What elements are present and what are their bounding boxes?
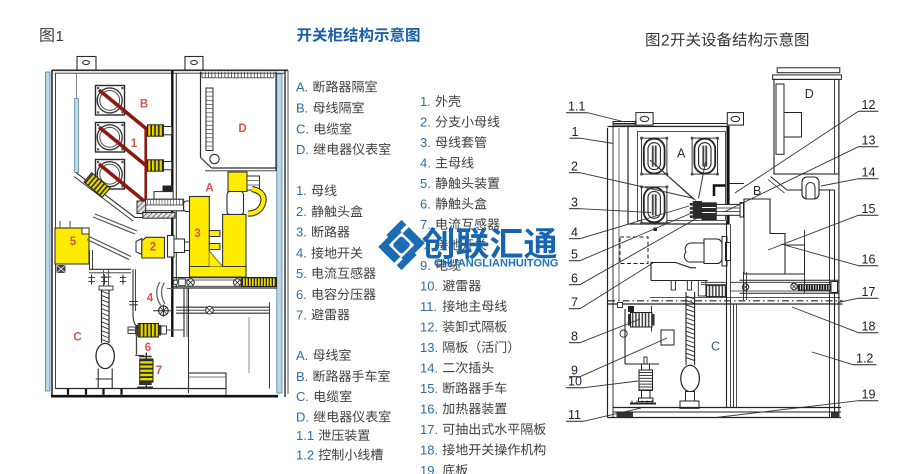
svg-text:1.: 1.	[420, 94, 431, 109]
svg-text:13.: 13.	[420, 340, 438, 355]
svg-text:3: 3	[194, 228, 200, 240]
svg-text:3.: 3.	[296, 225, 307, 240]
svg-text:B.: B.	[296, 101, 308, 116]
svg-text:5: 5	[571, 248, 578, 262]
svg-text:14: 14	[862, 166, 876, 180]
svg-text:2: 2	[571, 160, 578, 174]
svg-text:7.: 7.	[296, 307, 307, 322]
svg-text:10.: 10.	[420, 278, 438, 293]
svg-text:1: 1	[572, 125, 579, 139]
svg-text:D.: D.	[296, 142, 309, 157]
svg-text:6.: 6.	[420, 196, 431, 211]
svg-text:4.: 4.	[296, 246, 307, 261]
svg-text:4: 4	[147, 293, 154, 305]
svg-text:6.: 6.	[296, 287, 307, 302]
svg-text:C: C	[73, 332, 81, 344]
svg-text:1.1: 1.1	[568, 100, 585, 114]
svg-text:C: C	[711, 339, 720, 353]
svg-text:1.2: 1.2	[856, 352, 873, 366]
svg-text:A: A	[677, 146, 686, 160]
svg-text:2: 2	[150, 242, 156, 254]
svg-text:D.: D.	[296, 409, 309, 424]
svg-text:7: 7	[571, 296, 578, 310]
svg-text:12: 12	[862, 98, 876, 112]
svg-text:1: 1	[56, 28, 64, 45]
svg-text:13: 13	[862, 134, 876, 148]
svg-text:16: 16	[862, 253, 876, 267]
svg-text:1.2: 1.2	[296, 447, 314, 462]
svg-text:4.: 4.	[420, 155, 431, 170]
svg-text:19.: 19.	[420, 463, 438, 474]
svg-text:2.: 2.	[420, 114, 431, 129]
svg-text:9.: 9.	[420, 258, 431, 273]
svg-text:B.: B.	[296, 369, 308, 384]
svg-text:3: 3	[571, 196, 578, 210]
svg-text:16.: 16.	[420, 401, 438, 416]
svg-text:A: A	[205, 183, 213, 195]
svg-text:11.: 11.	[420, 299, 437, 314]
svg-text:1.1: 1.1	[296, 428, 314, 443]
svg-text:15.: 15.	[420, 381, 438, 396]
svg-text:1.: 1.	[296, 183, 307, 198]
svg-text:7: 7	[156, 365, 162, 377]
svg-text:5: 5	[70, 236, 77, 248]
svg-text:2.: 2.	[296, 204, 307, 219]
svg-text:6: 6	[145, 342, 151, 354]
svg-text:8: 8	[571, 330, 578, 344]
svg-text:18.: 18.	[420, 442, 438, 457]
svg-text:C.: C.	[296, 122, 309, 137]
svg-text:1: 1	[131, 138, 138, 150]
svg-text:7.: 7.	[420, 217, 431, 232]
svg-text:A.: A.	[296, 348, 308, 363]
svg-text:B: B	[140, 99, 148, 111]
svg-text:5.: 5.	[296, 266, 307, 281]
svg-text:14.: 14.	[420, 360, 438, 375]
svg-text:A.: A.	[296, 79, 308, 94]
svg-text:3.: 3.	[420, 135, 431, 150]
svg-text:D: D	[805, 87, 814, 101]
svg-text:19: 19	[862, 388, 876, 402]
svg-text:12.: 12.	[420, 319, 438, 334]
svg-text:4: 4	[571, 226, 578, 240]
svg-text:15: 15	[862, 202, 876, 216]
svg-text:10: 10	[568, 375, 582, 389]
svg-text:D: D	[238, 123, 246, 135]
svg-text:2: 2	[661, 32, 670, 49]
svg-text:C.: C.	[296, 389, 309, 404]
svg-text:17.: 17.	[420, 422, 438, 437]
svg-text:6: 6	[571, 272, 578, 286]
svg-text:11: 11	[568, 408, 581, 422]
svg-text:CHUANGLIANHUITONG: CHUANGLIANHUITONG	[434, 257, 558, 269]
svg-text:5.: 5.	[420, 176, 431, 191]
svg-text:18: 18	[862, 320, 876, 334]
svg-text:17: 17	[862, 285, 876, 299]
